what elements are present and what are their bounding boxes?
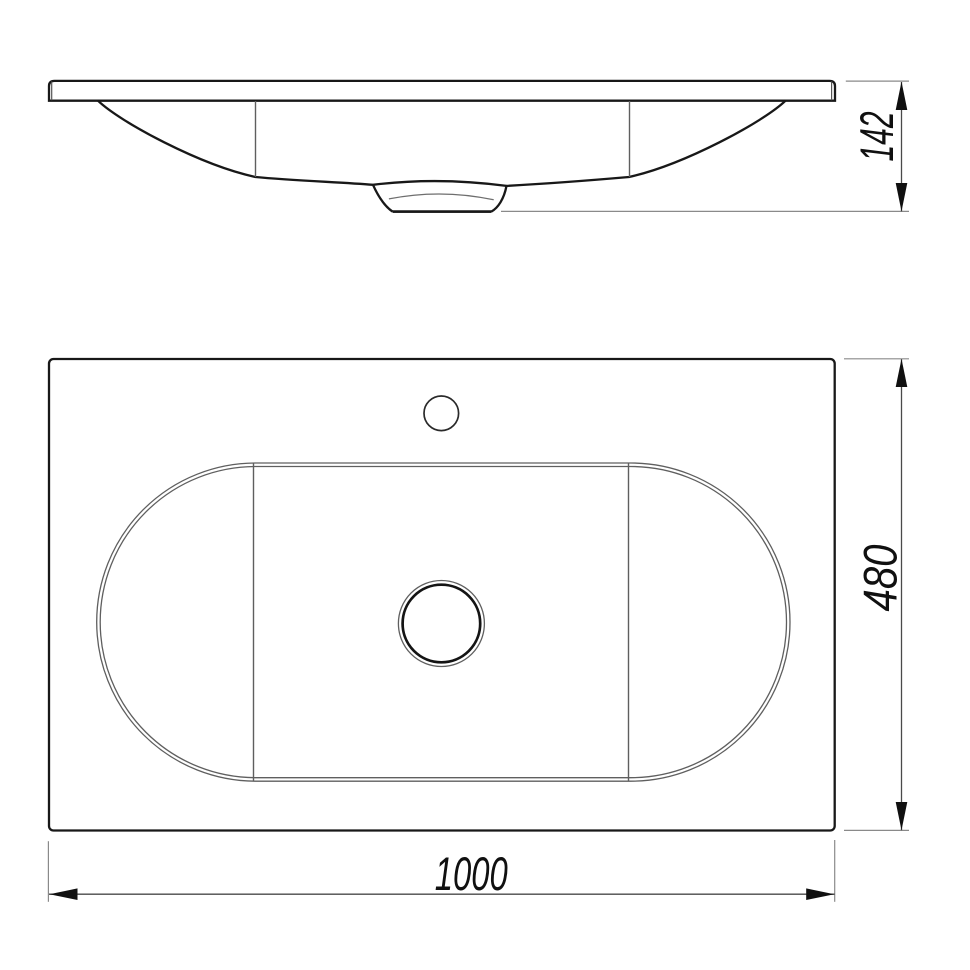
svg-text:1000: 1000	[435, 847, 508, 900]
svg-text:480: 480	[853, 545, 906, 612]
svg-text:142: 142	[850, 112, 903, 162]
